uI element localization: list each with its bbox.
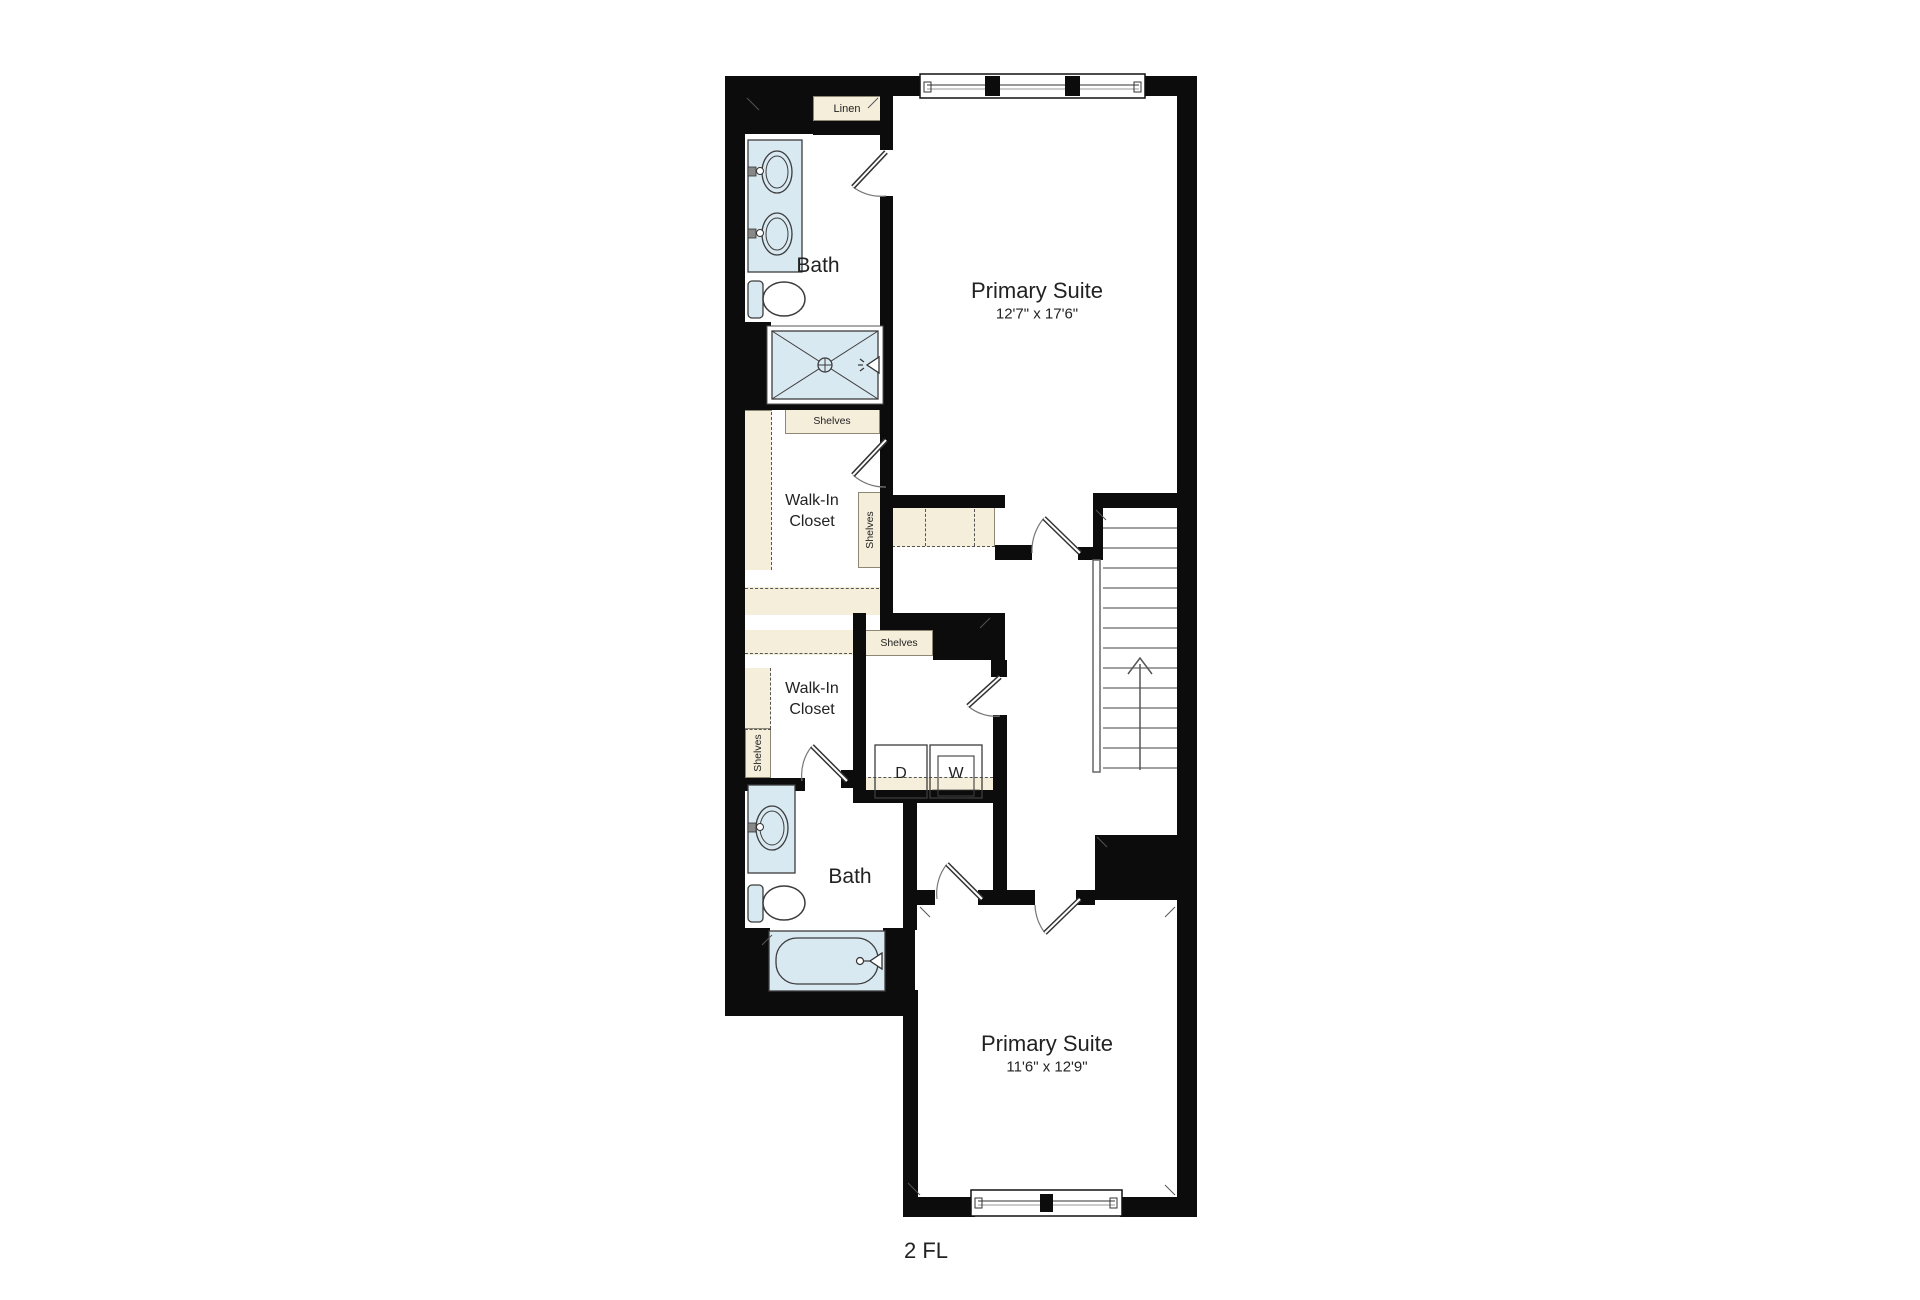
wall-segment xyxy=(1177,76,1197,1217)
wall-segment xyxy=(1120,1197,1197,1217)
primary-suite-top-label: Primary Suite xyxy=(971,278,1103,304)
hall-reachin-closet xyxy=(891,507,995,547)
bath-bottom-label: Bath xyxy=(828,865,871,889)
wall-segment xyxy=(725,990,915,1016)
window xyxy=(971,1190,1122,1216)
laundry-counter-edge xyxy=(863,777,993,778)
chase-block xyxy=(1095,835,1177,900)
primary-suite-top-dims: 12'7" x 17'6" xyxy=(996,306,1078,323)
toilet xyxy=(748,885,805,922)
shelf-edge xyxy=(745,729,771,730)
tub-faucet-icon xyxy=(857,953,883,969)
closet2-left-shelf xyxy=(745,668,771,730)
wall-segment xyxy=(745,778,805,791)
primary-suite-bottom-dims: 11'6" x 12'9" xyxy=(1006,1059,1087,1076)
wall-segment xyxy=(880,96,893,150)
wall-segment xyxy=(978,890,1035,905)
stairs-up-arrow-icon xyxy=(1128,658,1152,770)
wall-segment xyxy=(993,715,1007,890)
door xyxy=(1035,899,1080,933)
wall-segment xyxy=(975,613,1005,660)
primary-suite-bottom-label: Primary Suite xyxy=(981,1031,1113,1057)
closet2-top-shelf xyxy=(745,630,853,655)
wall-segment xyxy=(991,660,1007,677)
door xyxy=(1032,518,1080,553)
wall-segment xyxy=(745,397,883,410)
wall-segment xyxy=(813,121,881,135)
floor-plan: Shelves Shelves D W Linen Bath Primary S… xyxy=(0,0,1920,1300)
closet2-side-shelf xyxy=(745,728,771,778)
shelf-edge xyxy=(745,653,852,654)
closet1-left-shelf xyxy=(745,410,772,570)
shower-head-icon xyxy=(858,357,879,373)
door xyxy=(968,677,1000,716)
wall-segment xyxy=(880,487,893,630)
wall-segment xyxy=(725,76,922,96)
door xyxy=(937,864,982,899)
closet-rod xyxy=(974,509,975,546)
closet1-top-shelf-label: Shelves xyxy=(813,415,850,427)
wall-segment xyxy=(995,545,1032,560)
wall-segment xyxy=(903,990,918,1217)
closet-rod xyxy=(925,509,926,546)
stairs xyxy=(1103,528,1177,768)
bath-top-label: Bath xyxy=(796,254,839,278)
wall-segment xyxy=(892,495,1005,508)
wall-segment xyxy=(1076,890,1095,905)
shelf-edge xyxy=(745,588,879,589)
wall-segment xyxy=(841,770,853,788)
vanity-sink xyxy=(748,785,795,873)
wall-segment xyxy=(903,790,917,930)
wall-segment xyxy=(880,196,893,497)
wall-segment xyxy=(1093,508,1103,560)
closet1-side-shelf xyxy=(858,492,882,568)
wall-segment xyxy=(745,96,813,134)
toilet xyxy=(748,281,805,318)
wall-segment xyxy=(1093,493,1180,508)
door xyxy=(853,152,886,196)
walk-in-closet-top-label: Walk-In Closet xyxy=(769,490,855,532)
wall-segment xyxy=(903,890,935,905)
wall-segment xyxy=(883,928,915,990)
wall-segment xyxy=(903,1197,975,1217)
linen-label: Linen xyxy=(834,103,861,115)
wall-segment xyxy=(880,410,893,438)
vanity-double-sink xyxy=(748,140,802,272)
stair-railing xyxy=(1093,560,1100,772)
bathtub xyxy=(769,931,885,991)
closet-rod xyxy=(892,546,995,547)
wall-segment xyxy=(853,790,993,803)
wall-segment xyxy=(725,76,745,1016)
laundry-shelf-label: Shelves xyxy=(880,637,917,649)
walk-in-closet-bottom-label: Walk-In Closet xyxy=(769,678,855,720)
shower xyxy=(767,326,883,404)
floor-label: 2 FL xyxy=(904,1238,948,1264)
wall-segment xyxy=(745,928,770,990)
window xyxy=(920,74,1145,98)
closet1-bottom-shelf xyxy=(745,587,880,615)
